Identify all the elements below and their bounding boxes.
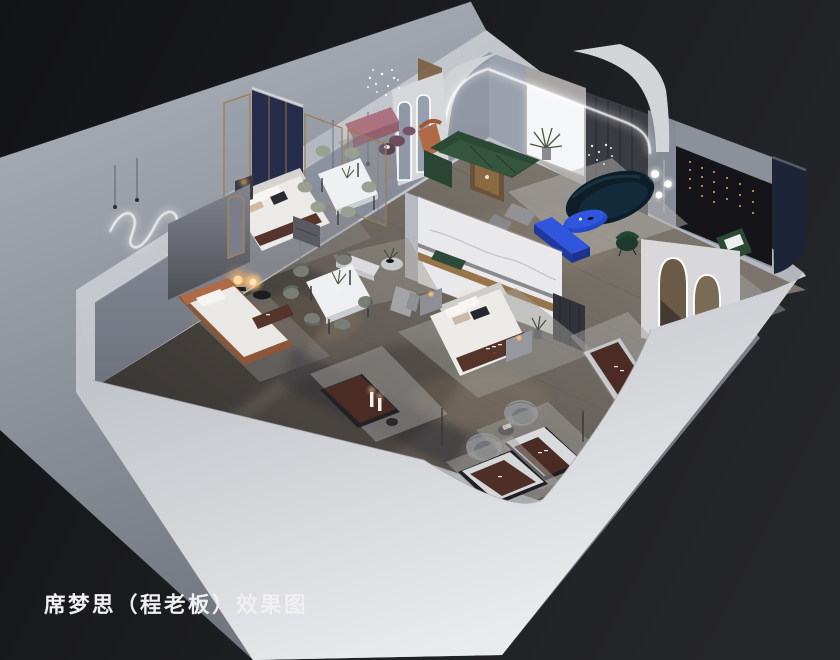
- showroom-render: 席梦思（程老板）效果图: [0, 0, 840, 660]
- render-canvas: 席梦思（程老板）效果图: [0, 0, 840, 660]
- caption: 席梦思（程老板）效果图: [44, 592, 308, 618]
